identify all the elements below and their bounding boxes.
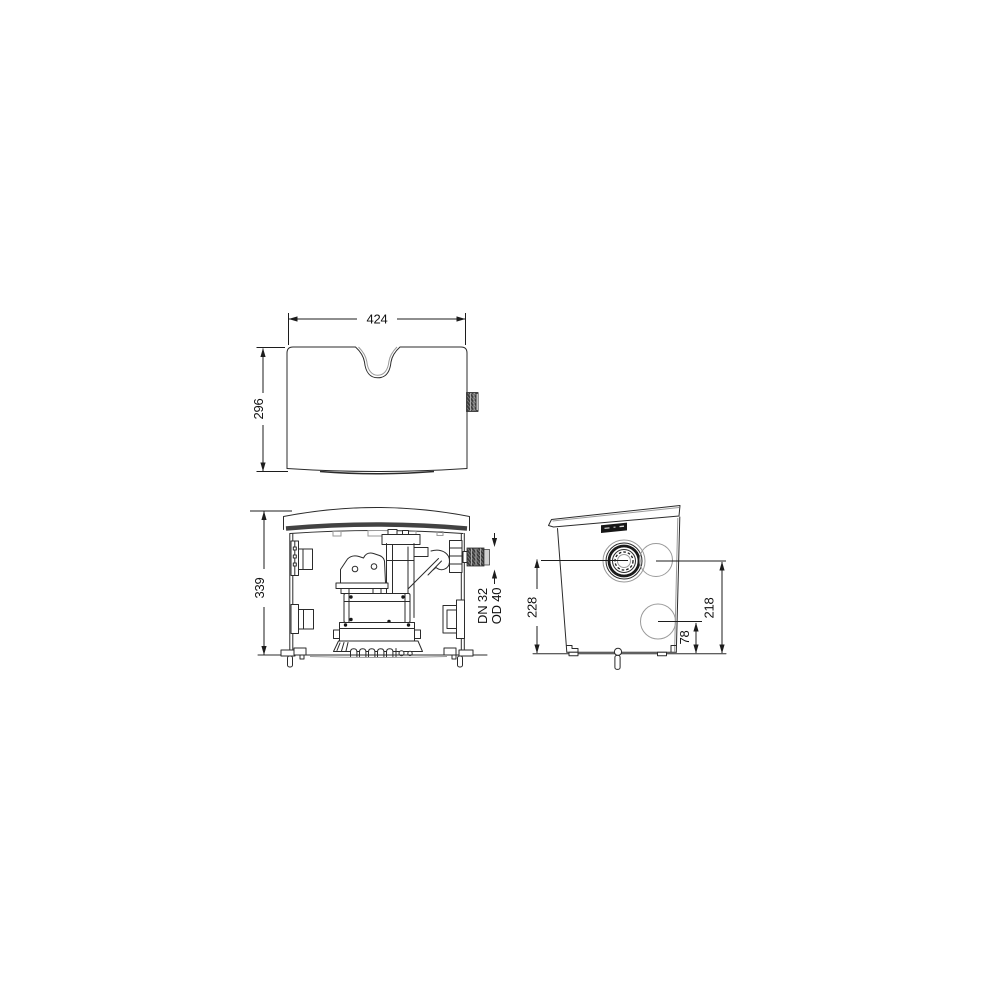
dim-top-depth: 296 xyxy=(251,348,288,472)
side-right-foot xyxy=(671,646,676,653)
front-right-foot xyxy=(459,650,473,656)
dim-label-front-height: 339 xyxy=(252,577,267,598)
dim-arrow-down xyxy=(719,645,724,654)
dim-outlet: DN 32 OD 40 xyxy=(475,533,504,624)
dim-arrow-up xyxy=(260,348,265,357)
side-left-foot xyxy=(567,646,578,653)
dim-arrow-up xyxy=(534,559,539,568)
dim-side-inlet-height: 228 xyxy=(525,559,629,654)
top-view: 424 296 xyxy=(251,312,478,474)
front-left-foot xyxy=(281,650,295,656)
dim-label-outlet-od: OD 40 xyxy=(489,588,504,625)
dim-arrow-down xyxy=(261,646,266,655)
right-lower-socket-plate xyxy=(457,600,465,639)
front-left-anchor-pin xyxy=(288,656,293,667)
side-drain-knob xyxy=(614,648,621,655)
front-outlet-assembly xyxy=(414,541,490,573)
front-right-anchor-pin xyxy=(458,656,463,667)
side-body xyxy=(558,517,680,652)
dim-arrow-down xyxy=(260,463,265,472)
dim-top-width: 424 xyxy=(289,312,466,346)
outlet-end-cap-front xyxy=(484,550,490,566)
front-lid-seal-band xyxy=(286,525,467,529)
dim-label-outlet-dn: DN 32 xyxy=(475,588,490,624)
dim-arrow-left xyxy=(289,316,298,321)
side-lid-inner-line xyxy=(553,508,680,522)
dim-arrow-up xyxy=(719,562,724,571)
outlet-ribbed-pipe-front xyxy=(467,548,484,566)
dim-arrow-down xyxy=(534,645,539,654)
float-bracket xyxy=(341,553,386,583)
side-upper-knockout xyxy=(640,544,673,577)
left-lower-socket-plate xyxy=(291,605,299,634)
top-view-body-outline xyxy=(287,347,467,469)
dim-label-side-lower-opening: 78 xyxy=(677,630,692,644)
technical-drawing-svg: 424 296 xyxy=(0,0,1000,1000)
pipe-support-strut xyxy=(408,559,439,590)
left-lower-socket-stub xyxy=(299,610,314,630)
outlet-hook xyxy=(431,550,450,570)
front-right-inlet-sockets xyxy=(443,600,465,639)
pump-motor-body xyxy=(344,594,410,623)
dim-label-top-width: 424 xyxy=(366,312,387,327)
pipe-head-bracket xyxy=(382,535,420,545)
left-upper-socket-stub xyxy=(299,549,313,570)
dim-front-height: 339 xyxy=(250,511,292,655)
top-view-outlet-connector xyxy=(467,393,479,412)
dim-arrow-up xyxy=(693,623,698,632)
dim-label-top-depth: 296 xyxy=(251,398,266,419)
side-drain-pin xyxy=(615,655,620,669)
front-pump-unit xyxy=(334,553,423,657)
outlet-end-cap xyxy=(476,394,478,411)
side-lid-outline xyxy=(549,506,681,528)
drawing-canvas: 424 296 xyxy=(0,0,1000,1000)
dim-label-side-inlet-height: 228 xyxy=(525,597,540,618)
pump-top-plate xyxy=(336,583,388,589)
dim-arrow-up xyxy=(261,511,266,520)
dim-arrow-right xyxy=(457,316,466,321)
pump-volute xyxy=(340,623,415,642)
nameplate-mark xyxy=(605,528,610,529)
dim-arrow-down xyxy=(492,538,497,547)
side-view: 228 218 78 xyxy=(525,506,727,670)
front-view: 339 DN 32 OD 40 xyxy=(250,508,504,668)
dim-arrow-down xyxy=(693,645,698,654)
dim-label-side-upper-opening: 218 xyxy=(702,597,717,618)
front-left-inlet-sockets xyxy=(291,541,314,634)
dim-arrow-up xyxy=(492,570,497,579)
top-view-front-edge-arc xyxy=(287,469,467,472)
